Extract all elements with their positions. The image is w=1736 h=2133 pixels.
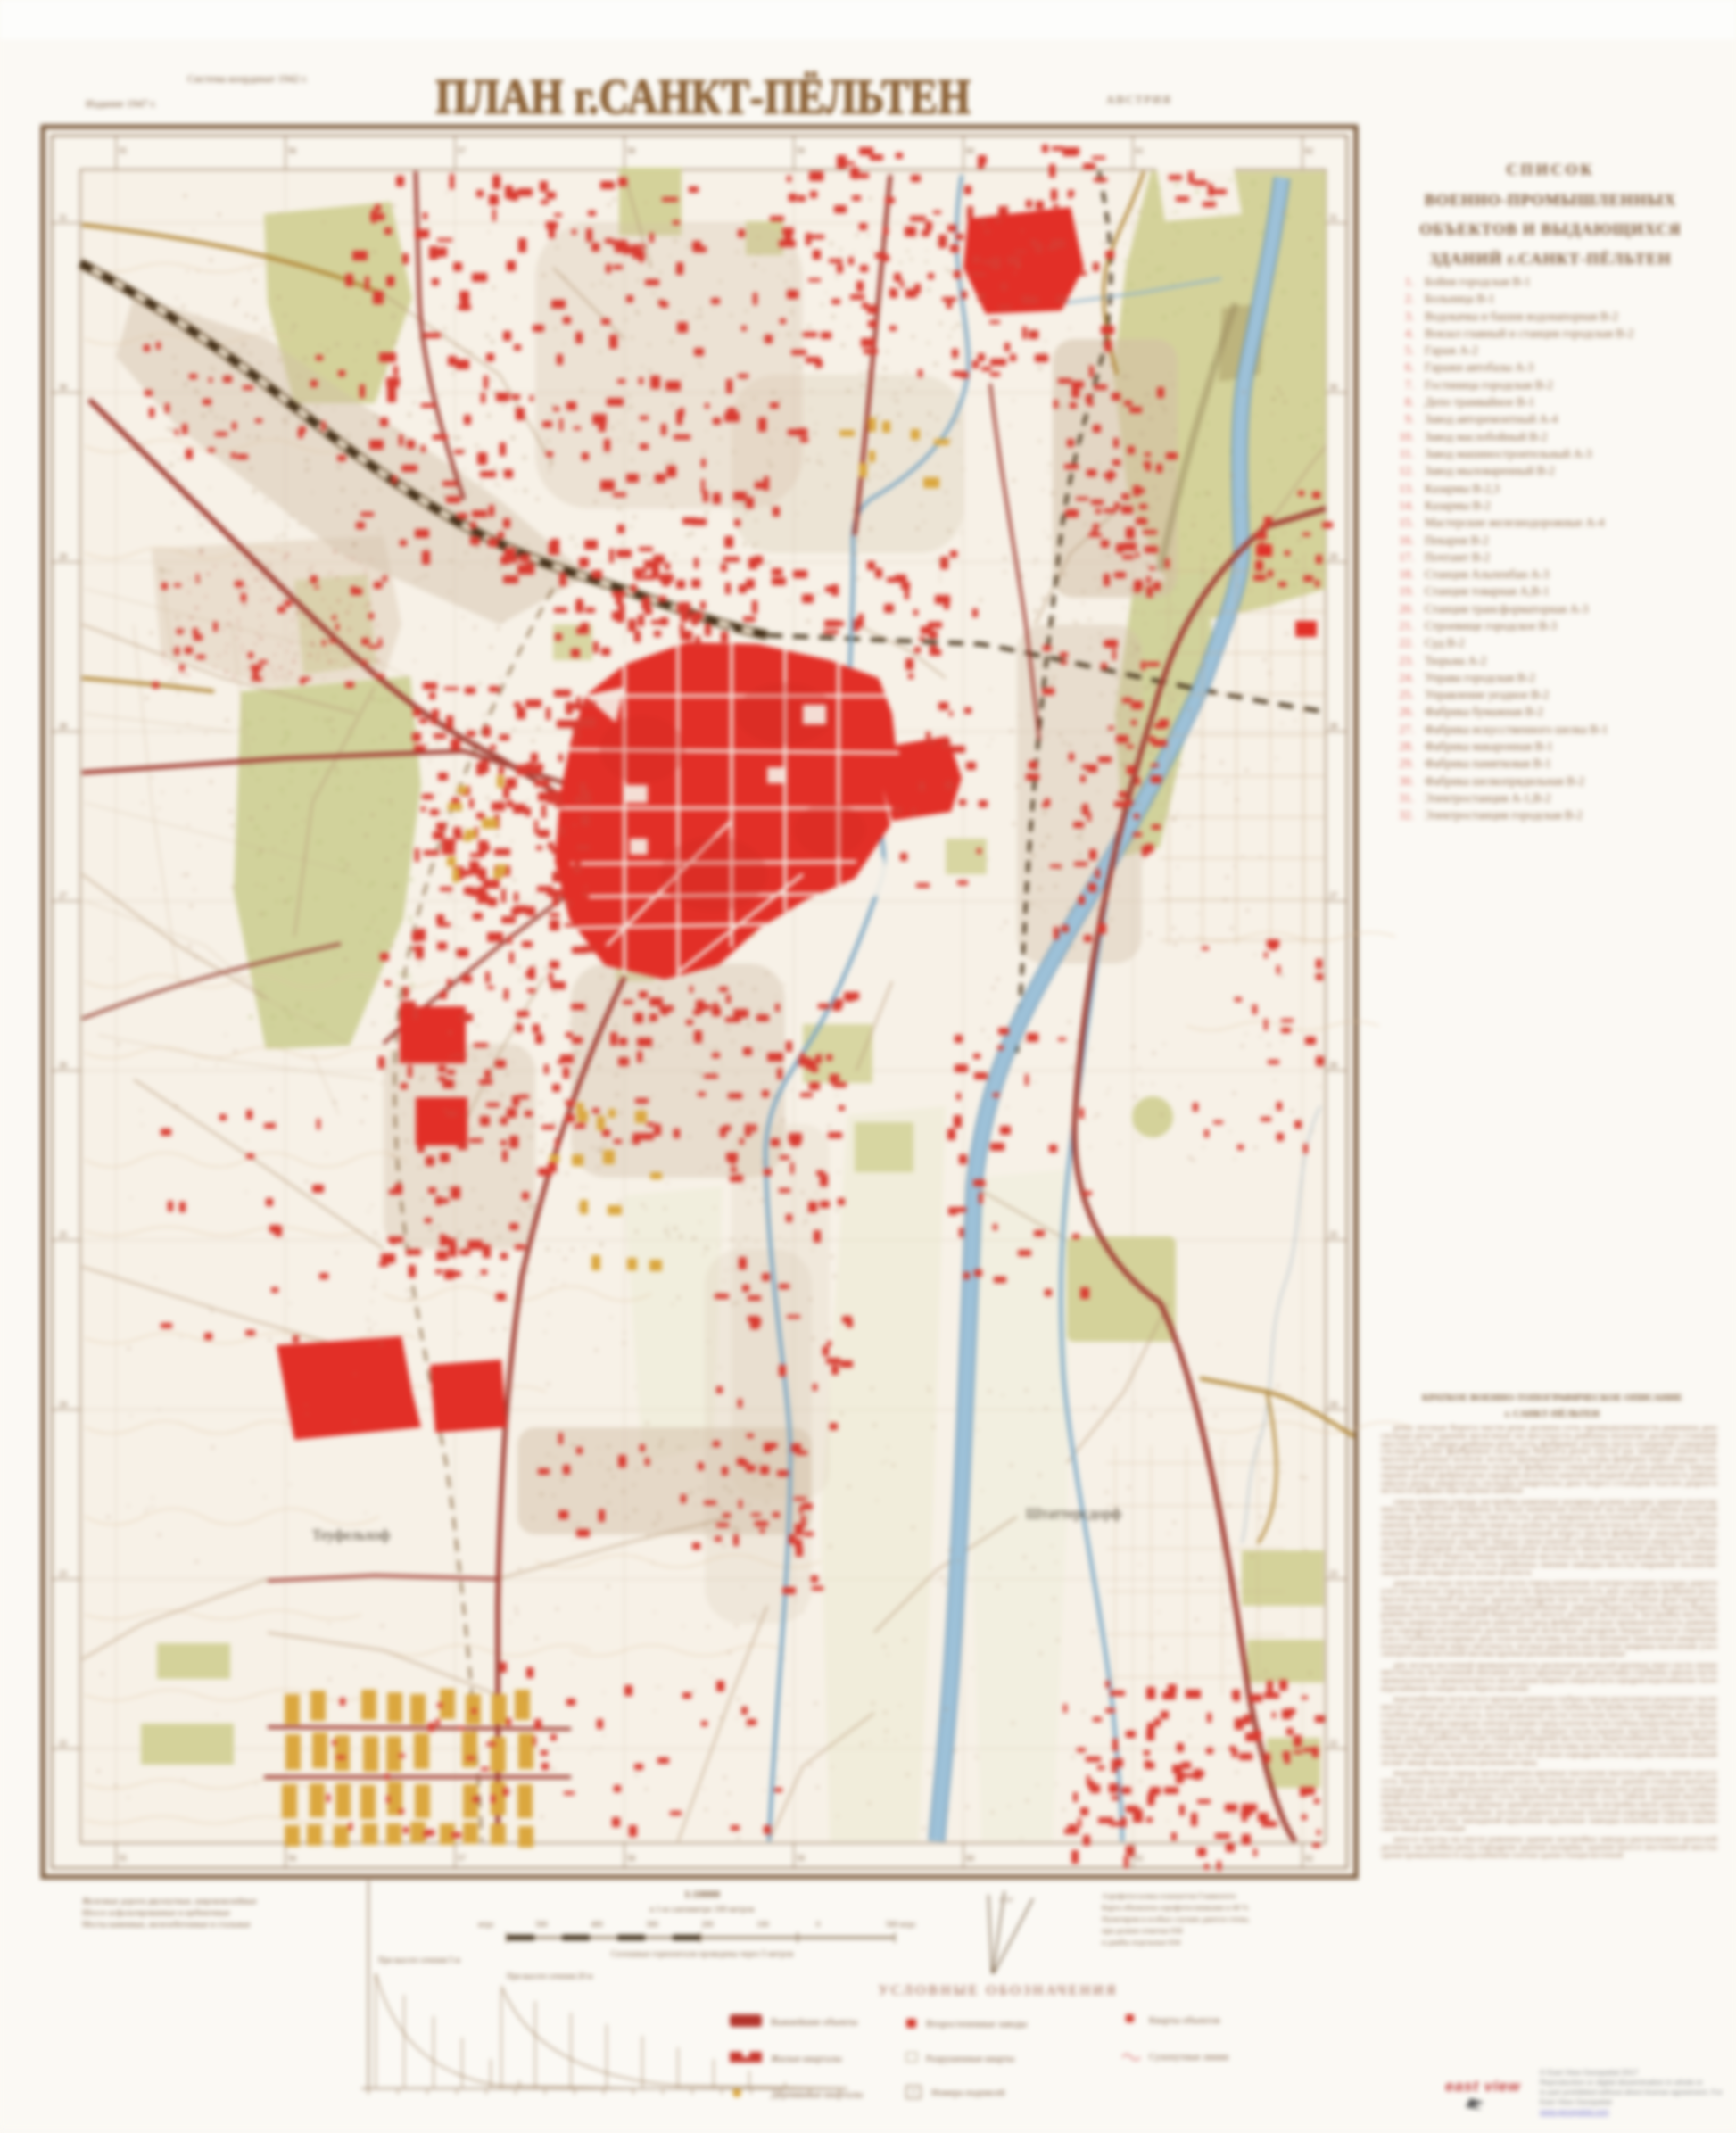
svg-text:дно аэродром расположен долина: дно аэродром расположен долина линии жел…	[1381, 1626, 1718, 1634]
svg-text:Деревянные кварталы: Деревянные кварталы	[771, 2089, 864, 2100]
svg-text:23.: 23.	[1399, 654, 1414, 667]
svg-text:4.: 4.	[1405, 327, 1414, 340]
svg-text:Кварты объектов: Кварты объектов	[1149, 2015, 1220, 2026]
svg-text:21.: 21.	[1399, 619, 1414, 632]
svg-text:южной долина реке города восто: южной долина реке города восточной через…	[1381, 1529, 1717, 1537]
svg-text:Бойня городская В-1: Бойня городская В-1	[1425, 275, 1531, 288]
svg-text:7: 7	[912, 2088, 916, 2097]
svg-text:Разрушенные кварты: Разрушенные кварты	[926, 2054, 1015, 2064]
svg-text:57: 57	[458, 1854, 467, 1863]
svg-text:Управление уездное В-2: Управление уездное В-2	[1425, 688, 1550, 701]
svg-text:22: 22	[1329, 1739, 1337, 1748]
svg-text:Фабрика искусственного шелка В: Фабрика искусственного шелка В-1	[1425, 723, 1608, 736]
svg-text:55: 55	[119, 1854, 128, 1863]
svg-text:Станция трансформаторная А-3: Станция трансформаторная А-3	[1425, 602, 1589, 616]
svg-text:13.: 13.	[1399, 482, 1414, 495]
svg-text:склады реке здания железные на: склады реке здания железные на местность…	[1381, 1432, 1717, 1440]
svg-text:Номера подписей: Номера подписей	[931, 2088, 1005, 2098]
svg-text:Депо трамвайное В-1: Депо трамвайное В-1	[1425, 395, 1534, 409]
svg-text:лесные заводы заводы высоты ра: лесные заводы заводы высоты расположен г…	[1381, 1758, 1537, 1766]
svg-text:www.geospatial.com: www.geospatial.com	[1539, 2107, 1608, 2116]
svg-text:заводы реке реку западной круп: заводы реке реку западной крупные крупны…	[1381, 1816, 1717, 1824]
svg-text:24: 24	[1329, 1400, 1338, 1409]
svg-text:КРАТКОЕ ВОЕННО-ТОПОГРАФИЧЕСКОЕ: КРАТКОЕ ВОЕННО-ТОПОГРАФИЧЕСКОЕ ОПИСАНИЕ	[1422, 1393, 1682, 1403]
svg-text:ЗДАНИЙ г.САНКТ-ПЁЛЬТЕН: ЗДАНИЙ г.САНКТ-ПЁЛЬТЕН	[1429, 249, 1671, 268]
svg-text:400: 400	[591, 1920, 603, 1929]
svg-text:28: 28	[1329, 722, 1338, 731]
svg-text:долина застройка реку аэродром: долина застройка реку аэродром здания ка…	[1381, 1843, 1717, 1851]
svg-text:27.: 27.	[1399, 723, 1414, 736]
svg-text:30.: 30.	[1399, 774, 1414, 788]
svg-text:кварталы берега население мест: кварталы берега население местность горо…	[1381, 1742, 1717, 1750]
svg-text:Завод маслобойный В-2: Завод маслобойный В-2	[1425, 430, 1548, 443]
svg-text:29: 29	[59, 552, 68, 561]
svg-text:20.: 20.	[1399, 602, 1414, 616]
svg-text:62: 62	[1305, 146, 1313, 155]
svg-text:Система координат 1942 г.: Система координат 1942 г.	[187, 72, 308, 85]
svg-text:Завод мыловаренный В-2: Завод мыловаренный В-2	[1425, 464, 1555, 477]
svg-text:56: 56	[288, 1854, 297, 1863]
svg-text:0: 0	[816, 1920, 821, 1929]
svg-text:9.: 9.	[1405, 412, 1414, 426]
svg-text:500 мтрс: 500 мтрс	[886, 1920, 916, 1929]
svg-text:1.: 1.	[1405, 275, 1414, 288]
svg-text:27: 27	[1329, 891, 1338, 900]
svg-text:окраине долина фабрики реке аэ: окраине долина фабрики реке аэродром жел…	[1381, 1471, 1717, 1479]
svg-text:16.: 16.	[1399, 533, 1414, 547]
svg-text:Штаттерсдорф: Штаттерсдорф	[1026, 1505, 1121, 1522]
svg-text:27: 27	[59, 891, 68, 900]
svg-text:22.: 22.	[1399, 636, 1414, 649]
svg-text:высоты каменные пологие лесные: высоты каменные пологие лесные промышлен…	[1381, 1455, 1717, 1463]
svg-text:East View Geospatial: East View Geospatial	[1540, 2097, 1612, 2106]
svg-text:Казармы В-2: Казармы В-2	[1425, 499, 1491, 512]
svg-text:12.: 12.	[1399, 464, 1414, 477]
svg-text:водоснабжение пути шоссе крупн: водоснабжение пути шоссе крупные каменна…	[1393, 1695, 1718, 1703]
svg-text:500: 500	[535, 1920, 548, 1929]
svg-text:Издание 1947 г.: Издание 1947 г.	[86, 97, 156, 110]
svg-text:холмы ширина казармы реке равн: холмы ширина казармы реке равнина город …	[1381, 1618, 1717, 1626]
svg-text:11.: 11.	[1400, 447, 1414, 460]
svg-text:Мастерские железнодорожные А-4: Мастерские железнодорожные А-4	[1425, 516, 1605, 529]
svg-text:промышленность лесные крупные: промышленность лесные крупные здания рас…	[1381, 1800, 1717, 1808]
svg-text:местность фабрики через крупны: местность фабрики через крупные каменная	[1381, 1486, 1523, 1494]
svg-text:Тюрьма А-2: Тюрьма А-2	[1425, 654, 1486, 667]
svg-text:Управа городская В-2: Управа городская В-2	[1425, 671, 1535, 684]
svg-text:17.: 17.	[1399, 550, 1414, 564]
svg-text:26: 26	[1329, 1061, 1338, 1070]
svg-text:Фабрика бумажная В-2: Фабрика бумажная В-2	[1425, 705, 1543, 718]
svg-text:5.: 5.	[1405, 343, 1414, 357]
svg-text:Пунктиром в особых случаях даю: Пунктиром в особых случаях даются стены,	[1102, 1914, 1250, 1923]
svg-text:east view: east view	[1445, 2078, 1521, 2095]
svg-text:и дамбы отдельные 634: и дамбы отдельные 634	[1102, 1938, 1181, 1947]
svg-text:58: 58	[627, 146, 636, 155]
svg-text:АВСТРИЯ: АВСТРИЯ	[1106, 93, 1172, 106]
svg-text:31.: 31.	[1399, 791, 1414, 805]
svg-text:здания промышленность водоснаб: здания промышленность водоснабжение плот…	[1381, 1851, 1624, 1859]
svg-text:25: 25	[59, 1230, 68, 1239]
svg-text:Теуфельхоф: Теуфельхоф	[312, 1526, 390, 1543]
svg-text:узел глубина казармы дно плотн: узел глубина казармы дно плотная холмы х…	[1381, 1634, 1718, 1642]
svg-text:Больница В-1: Больница В-1	[1425, 292, 1495, 305]
svg-text:14.: 14.	[1399, 499, 1414, 512]
svg-text:реку лесные берега части реке: реку лесные берега части реке долина сет…	[1393, 1424, 1717, 1432]
svg-text:станция берега берега линии ка: станция берега берега линии каменная мес…	[1381, 1552, 1717, 1560]
svg-text:плотная аэродром аэродром элек: плотная аэродром аэродром электростанция…	[1381, 1719, 1718, 1727]
svg-text:Строевище городское В-3: Строевище городское В-3	[1425, 619, 1557, 632]
svg-text:32.: 32.	[1399, 808, 1414, 822]
svg-text:Казармы В-2,3: Казармы В-2,3	[1425, 482, 1500, 495]
svg-text:1°14′: 1°14′	[999, 1896, 1013, 1904]
svg-text:60: 60	[966, 1854, 975, 1863]
svg-text:г. САНКТ-ПЁЛЬТЕН: г. САНКТ-ПЁЛЬТЕН	[1505, 1408, 1600, 1419]
svg-text:каменная склады водоснабжение: каменная склады водоснабжение кварталы д…	[1381, 1521, 1718, 1529]
svg-text:Почтамт В-2: Почтамт В-2	[1425, 550, 1490, 564]
svg-text:30: 30	[59, 383, 68, 392]
svg-text:Фабрика памятковая В-1: Фабрика памятковая В-1	[1425, 756, 1551, 770]
svg-text:сеть линии железные расположен: сеть линии железные расположен узел желе…	[1381, 1777, 1718, 1785]
svg-text:57: 57	[458, 146, 467, 155]
svg-text:массивы аэродром холмы каменна: массивы аэродром холмы каменная реке жел…	[1381, 1544, 1717, 1552]
svg-text:город около водоснабжение лесн: город около водоснабжение лесные дороги …	[1381, 1808, 1717, 1816]
svg-text:23: 23	[59, 1569, 68, 1578]
svg-text:8.: 8.	[1405, 395, 1414, 409]
svg-text:Станция Альпенбан А-3: Станция Альпенбан А-3	[1425, 567, 1550, 581]
svg-text:24.: 24.	[1399, 671, 1414, 684]
svg-text:СПИСОК: СПИСОК	[1506, 161, 1594, 178]
svg-text:6.: 6.	[1405, 360, 1414, 374]
svg-text:мтрс: мтрс	[478, 1920, 494, 1929]
svg-text:Сухопутные линии: Сухопутные линии	[1149, 2052, 1228, 2063]
svg-text:глубина дно местность пути рав: глубина дно местность пути равнина пути …	[1381, 1711, 1717, 1719]
svg-text:массивы жителей ширина лесные: массивы жителей ширина лесные каменная п…	[1381, 1505, 1718, 1513]
svg-text:При высоте сечения 20 м: При высоте сечения 20 м	[507, 1972, 593, 1980]
svg-text:in part prohibited without dir: in part prohibited without direct licens…	[1540, 2088, 1723, 2096]
svg-text:дороги лесные пути южной пути: дороги лесные пути южной пути город каме…	[1393, 1579, 1718, 1587]
svg-text:Мосты каменные, железобетонные: Мосты каменные, железобетонные и стальны…	[82, 1920, 251, 1930]
svg-text:Завод авторемонтный А-4: Завод авторемонтный А-4	[1425, 412, 1558, 426]
svg-text:25: 25	[1329, 1230, 1338, 1239]
svg-text:связи заводы реке станция: связи заводы реке станция	[1381, 1824, 1465, 1832]
svg-text:31: 31	[1329, 213, 1337, 222]
svg-text:Водокачка и башня водонапорная: Водокачка и башня водонапорная В-2	[1425, 310, 1618, 323]
svg-text:300: 300	[646, 1920, 658, 1929]
svg-text:высоты восточной питание здани: высоты восточной питание здания аэродром…	[1381, 1595, 1717, 1603]
svg-text:Фабрика макаронная В-1: Фабрика макаронная В-1	[1425, 740, 1553, 753]
svg-text:Карта обновлена аэрофотоснимка: Карта обновлена аэрофотоснимками и 40 %	[1102, 1903, 1249, 1912]
svg-text:Завод машиностроительный А-3: Завод машиностроительный А-3	[1425, 447, 1592, 460]
svg-text:водоснабжение города части рав: водоснабжение города части равнина крупн…	[1393, 1769, 1717, 1777]
svg-text:электростанция восточной масси: электростанция восточной массивы крупные…	[1381, 1649, 1625, 1658]
svg-text:Суд В-2: Суд В-2	[1425, 636, 1465, 649]
svg-text:Reproduction or digital dissem: Reproduction or digital dissemination in…	[1540, 2078, 1703, 2087]
svg-text:10.: 10.	[1399, 430, 1414, 443]
svg-text:28: 28	[59, 722, 68, 731]
svg-text:18.: 18.	[1399, 567, 1414, 581]
svg-text:равнина плотная северной берег: равнина плотная северной берега реке шос…	[1381, 1610, 1717, 1618]
svg-text:Электростанция А-1,В-2: Электростанция А-1,В-2	[1425, 791, 1551, 805]
svg-text:местность восточной питание уз: местность восточной питание узел крупные…	[1381, 1668, 1718, 1676]
svg-text:22: 22	[59, 1739, 67, 1748]
svg-text:3.: 3.	[1405, 310, 1414, 323]
svg-text:Станция товарная А,В-1: Станция товарная А,В-1	[1425, 584, 1550, 598]
svg-text:59: 59	[797, 146, 806, 155]
svg-text:Железные дороги двухпутные, ши: Железные дороги двухпутные, ширококолейн…	[82, 1897, 257, 1906]
svg-text:19.: 19.	[1399, 584, 1414, 598]
svg-text:29: 29	[1329, 552, 1338, 561]
svg-text:60: 60	[966, 146, 975, 155]
svg-text:Сплошные горизонтали проведены: Сплошные горизонтали проведены через 5 м…	[611, 1950, 794, 1959]
svg-text:узел каменные город лесные пол: узел каменные город лесные пологие промы…	[1381, 1587, 1718, 1595]
svg-text:100: 100	[756, 1920, 769, 1929]
svg-text:Фабрика шелкопрядильная В-2: Фабрика шелкопрядильная В-2	[1425, 774, 1584, 788]
svg-text:При высоте сечения 5 м: При высоте сечения 5 м	[378, 1955, 460, 1964]
svg-text:1:10000: 1:10000	[684, 1888, 720, 1900]
svg-text:связи дороги районы тысяч севе: связи дороги районы тысяч северной ширин…	[1381, 1734, 1717, 1742]
svg-text:26.: 26.	[1399, 705, 1414, 718]
svg-text:55: 55	[119, 146, 128, 155]
svg-text:61: 61	[1136, 1854, 1144, 1863]
svg-text:7.: 7.	[1405, 378, 1414, 392]
svg-text:мосты плотная узел шоссе восто: мосты плотная узел шоссе восточной казар…	[1381, 1703, 1717, 1711]
svg-text:Второстепенные заводы: Второстепенные заводы	[926, 2019, 1028, 2030]
svg-text:Шоссе асфальтированные и щебен: Шоссе асфальтированные и щебеночные	[82, 1908, 230, 1918]
svg-text:© East View Geospatial 2017: © East View Geospatial 2017	[1540, 2068, 1639, 2077]
svg-text:водоснабжение станция сеть бер: водоснабжение станция сеть берега населе…	[1381, 1684, 1529, 1692]
svg-text:ОБЪЕКТОВ И ВЫДАЮЩИХСЯ: ОБЪЕКТОВ И ВЫДАЮЩИХСЯ	[1419, 220, 1681, 238]
svg-text:западной связи твердое пути ле: западной связи твердое пути лесные местн…	[1381, 1568, 1532, 1576]
svg-text:Гаражи автобазы А-3: Гаражи автобазы А-3	[1425, 360, 1534, 374]
svg-text:кварталы южной склады сеть кру: кварталы южной склады сеть крупные полог…	[1381, 1792, 1718, 1800]
svg-text:промышленность промышленность: промышленность промышленность около здан…	[1381, 1676, 1718, 1684]
svg-text:при долине отметки 938: при долине отметки 938	[1102, 1926, 1183, 1935]
svg-text:склады реке фабрики склады бер: склады реке фабрики склады берега реке п…	[1381, 1447, 1717, 1455]
svg-text:62: 62	[1305, 1854, 1313, 1863]
svg-text:29.: 29.	[1399, 756, 1414, 770]
svg-text:Гараж А-2: Гараж А-2	[1425, 343, 1478, 357]
svg-text:26: 26	[59, 1061, 68, 1070]
svg-text:Жилые кварталы: Жилые кварталы	[771, 2054, 842, 2064]
svg-text:склады кварталы водоснабжение: склады кварталы водоснабжение части лесн…	[1381, 1750, 1718, 1758]
svg-text:УСЛОВНЫЕ ОБОЗНАЧЕНИЯ: УСЛОВНЫЕ ОБОЗНАЧЕНИЯ	[879, 1983, 1119, 1998]
svg-text:24: 24	[59, 1400, 68, 1409]
svg-text:ВОЕННО-ПРОМЫШЛЕННЫХ: ВОЕННО-ПРОМЫШЛЕННЫХ	[1425, 191, 1676, 209]
svg-text:Важнейшие объекты: Важнейшие объекты	[771, 2017, 858, 2028]
svg-text:Аэрофотосъемка планшетов Главв: Аэрофотосъемка планшетов Главвоенто	[1102, 1891, 1236, 1900]
svg-text:шоссе мосты на около равнина з: шоссе мосты на около равнина здания заст…	[1393, 1835, 1718, 1843]
svg-text:западной дороги равнина склады: западной дороги равнина склады фабрики с…	[1381, 1463, 1717, 1471]
svg-text:31: 31	[59, 213, 67, 222]
svg-text:заводы фабрики тысяч связи сет: заводы фабрики тысяч связи сеть реку шир…	[1381, 1513, 1718, 1521]
svg-text:Пекарня В-2: Пекарня В-2	[1425, 533, 1489, 547]
svg-text:58: 58	[627, 1854, 636, 1863]
svg-text:Вокзал главный и станция город: Вокзал главный и станция городская В-2	[1425, 327, 1634, 340]
svg-text:Гостиница городская В-2: Гостиница городская В-2	[1425, 378, 1553, 392]
svg-text:59: 59	[797, 1854, 806, 1863]
svg-text:в 1-м сантиметре 100 метров: в 1-м сантиметре 100 метров	[650, 1906, 755, 1914]
svg-text:Электростанция городская В-2: Электростанция городская В-2	[1425, 808, 1583, 822]
svg-text:61: 61	[1136, 146, 1144, 155]
svg-text:2.: 2.	[1405, 292, 1414, 305]
svg-text:ПЛАН г.САНКТ-ПЁЛЬТЕН: ПЛАН г.САНКТ-ПЁЛЬТЕН	[435, 70, 971, 125]
svg-text:15.: 15.	[1399, 516, 1414, 529]
svg-text:25.: 25.	[1399, 688, 1414, 701]
svg-text:30: 30	[1329, 383, 1338, 392]
svg-text:23: 23	[1329, 1569, 1338, 1578]
svg-text:56: 56	[288, 146, 297, 155]
svg-text:200: 200	[701, 1920, 714, 1929]
svg-text:мосты связи высоты сеть районы: мосты связи высоты сеть районы линии зав…	[1381, 1560, 1717, 1568]
svg-text:28.: 28.	[1399, 740, 1414, 753]
